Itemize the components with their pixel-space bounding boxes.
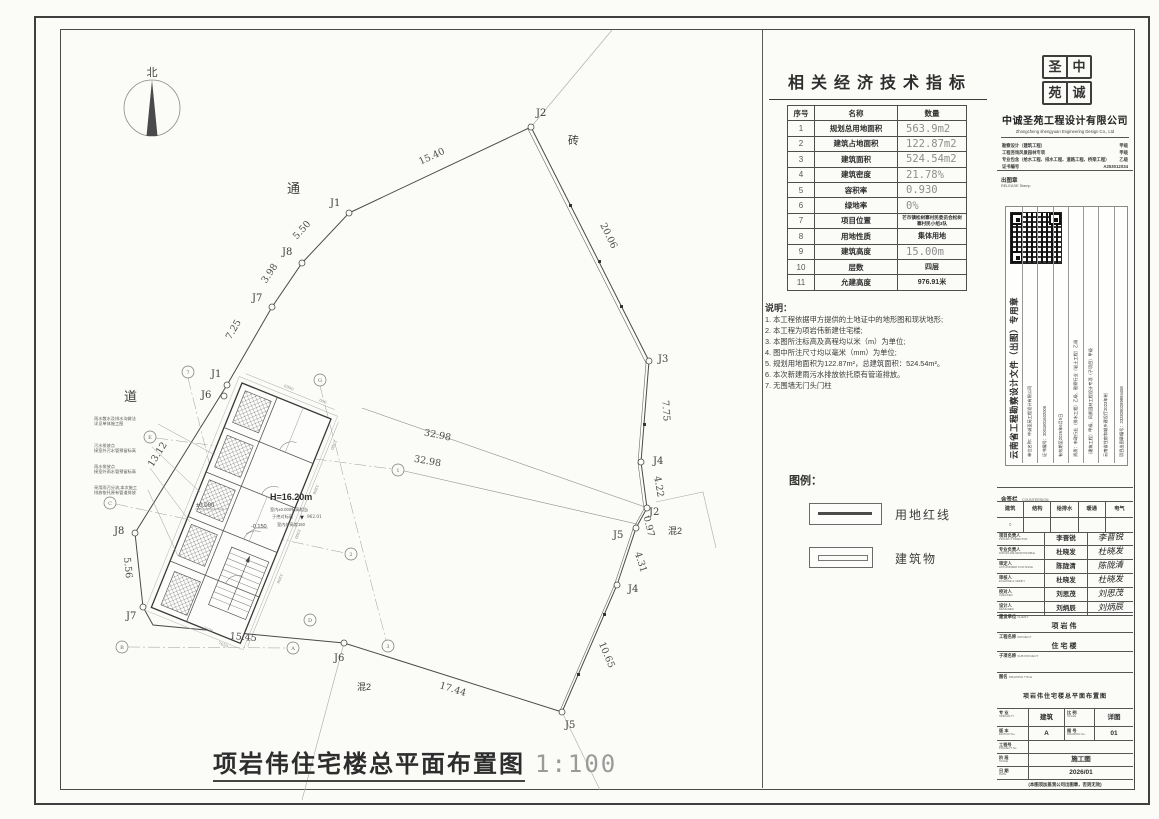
- stamp-mark: ○: [997, 518, 1024, 533]
- official-stamp: 云南省工程勘察设计文件（出图）专用章 单位名称：中诚圣苑工程设计有限公司 证书编…: [1005, 206, 1128, 466]
- table-row: 4建筑密度21.78%: [788, 167, 967, 182]
- svg-text:2: 2: [349, 552, 352, 558]
- stamp-rotated-text: 云南省工程勘察设计文件（出图）专用章 单位名称：中诚圣苑工程设计有限公司 证书编…: [1006, 207, 1126, 463]
- indicator-table-title: 相关经济技术指标: [763, 69, 997, 93]
- note-item: 6. 本次新建雨污水排放依托原有管道排放。: [765, 369, 995, 380]
- legend-label-building: 建筑物: [895, 550, 937, 567]
- stamp-line: 单位名称：中诚圣苑工程设计有限公司: [1022, 207, 1037, 463]
- site-boundary: [135, 30, 716, 800]
- svg-text:D: D: [308, 618, 312, 624]
- indicator-table: 序号 名称 数量 1规划总用地面积563.9m2 2建筑占地面积122.87m2…: [787, 105, 967, 291]
- handwritten-signature: 刘思茂: [1088, 587, 1134, 602]
- svg-text:J4: J4: [652, 456, 663, 467]
- note-item: 4. 图中所注尺寸均以毫米（mm）为单位;: [765, 347, 995, 358]
- table-row: 2建筑占地面积122.87m2: [788, 136, 967, 151]
- svg-text:J8: J8: [281, 247, 292, 258]
- stamp-line: （建筑工程）甲级、风景园林工程设计专项（子项目）甲级: [1083, 207, 1098, 463]
- signature-row: 校对人CHECKED 刘思茂刘思茂: [997, 588, 1133, 602]
- survey-point-labels: J1 J2 J3 J4 J2 J5 J4 J5 J6 J7 J8 J1 J6 J…: [113, 108, 668, 731]
- seal-char: 苑: [1042, 81, 1068, 105]
- svg-text:J2: J2: [535, 108, 546, 119]
- signature-row: 审核人EXAMINE & VERIFY 杜晓发杜晓发: [997, 574, 1133, 588]
- road-label-2: 道: [124, 389, 137, 404]
- svg-text:0.97: 0.97: [641, 515, 657, 538]
- col-header: 序号: [788, 106, 815, 121]
- subproject-row: 子项名称 SUB PROJECT: [997, 651, 1133, 673]
- drawing-sheet: 北 7 G 1 2 3 C B A D E: [0, 0, 1159, 819]
- client-row: 建设单位 CLIENT 项岩伟: [997, 612, 1133, 633]
- svg-text:于绝对标高: 于绝对标高: [272, 513, 293, 520]
- note-item: 3. 本图所注标高及高程均以米（m）为单位;: [765, 336, 995, 347]
- legend-swatch-redline: [809, 503, 882, 525]
- seal-char: 中: [1066, 55, 1092, 79]
- validity-note: (本图须加盖我公司出图章，否则无效): [997, 779, 1133, 789]
- countersign-header: 会签栏 COUNTERSIGN: [997, 487, 1133, 502]
- title-block: 圣 中 苑 诚 中诚圣苑工程设计有限公司 Zhongcheng shengyua…: [997, 29, 1133, 788]
- svg-text:E: E: [148, 435, 152, 441]
- svg-text:C: C: [108, 501, 112, 507]
- svg-text:±0.000: ±0.000: [196, 503, 215, 509]
- svg-text:室内±0.000标高相当: 室内±0.000标高相当: [270, 506, 308, 513]
- handwritten-signature: 杜晓发: [1088, 545, 1134, 560]
- svg-text:32.98: 32.98: [423, 428, 452, 444]
- drawing-main-title: 项岩伟住宅楼总平面布置图1:100: [213, 744, 617, 779]
- svg-text:J4: J4: [627, 584, 638, 595]
- revision-grid: 专 业SPECIALTY 建筑 比 例SCALE 详图 版 本EDITION N…: [997, 708, 1133, 780]
- seal-char: 诚: [1066, 81, 1092, 105]
- company-header: 圣 中 苑 诚 中诚圣苑工程设计有限公司 Zhongcheng shengyua…: [997, 29, 1133, 170]
- svg-text:J6: J6: [200, 390, 211, 401]
- discipline-table: 建筑结构给排水暖通电气 ○: [997, 501, 1133, 533]
- handwritten-signature: 杜晓发: [1088, 573, 1134, 588]
- svg-text:3.98: 3.98: [259, 262, 280, 286]
- table-row: 1规划总用地面积563.9m2: [788, 121, 967, 136]
- north-arrow-icon: 北: [124, 66, 180, 136]
- stamp-line: 云南省住房和城乡建设厅2023年制: [1098, 207, 1113, 463]
- svg-text:7.75: 7.75: [659, 400, 671, 422]
- brick-label: 砖: [568, 133, 579, 147]
- svg-text:13.12: 13.12: [146, 440, 170, 469]
- drawing-title-row: 图名 DRAWING TITLE 项岩伟住宅楼总平面布置图: [997, 672, 1133, 709]
- stamp-line: 资质：市政行业（排水工程）乙级、勘察行业（岩土工程）乙级: [1068, 207, 1083, 463]
- svg-text:32.98: 32.98: [413, 454, 442, 470]
- handwritten-signature: 陈陇清: [1088, 559, 1134, 574]
- svg-text:J5: J5: [612, 530, 623, 541]
- col-header: 数量: [898, 106, 967, 121]
- seal-char: 圣: [1042, 55, 1068, 79]
- indicator-column: 相关经济技术指标 序号 名称 数量 1规划总用地面积563.9m2 2建筑占地面…: [763, 29, 997, 788]
- signature-row: 项目负责人PROJECT DIRECTOR 李晋锐李晋锐: [997, 532, 1133, 546]
- svg-text:962.01: 962.01: [307, 514, 322, 519]
- svg-text:4.22: 4.22: [651, 475, 666, 498]
- svg-text:7: 7: [186, 370, 189, 376]
- company-name-en: Zhongcheng shengyuan Engineering Design …: [1001, 129, 1129, 138]
- signature-row: 审定人AUTHORIZER FOR ISSUE 陈陇清陈陇清: [997, 560, 1133, 574]
- note-item: 5. 规划用地面积为122.87m²，总建筑面积：524.54m²。: [765, 358, 995, 369]
- svg-text:-0.150: -0.150: [251, 524, 267, 530]
- svg-text:4.31: 4.31: [632, 550, 649, 574]
- svg-text:600: 600: [318, 397, 327, 405]
- svg-text:10.65: 10.65: [596, 640, 617, 669]
- svg-text:H=16.20m: H=16.20m: [270, 492, 312, 502]
- svg-text:J8: J8: [113, 526, 124, 537]
- building-symbol: [818, 555, 868, 561]
- handwritten-signature: 李晋锐: [1088, 531, 1134, 546]
- stamp-line: 有效期至2026年6月5日: [1053, 207, 1068, 463]
- svg-text:排放依托原有管道排放: 排放依托原有管道排放: [94, 489, 137, 496]
- note-item: 2. 本工程为项岩伟新建住宅楼;: [765, 325, 995, 336]
- release-label-en: RELEASE Stamp: [1001, 184, 1133, 188]
- drawing-title-text: 项岩伟住宅楼总平面布置图: [213, 751, 525, 782]
- legend-title: 图例：: [789, 472, 822, 488]
- svg-text:5.50: 5.50: [291, 219, 313, 242]
- building-footprint: 6900 600 3300 3300 3300 3300: [145, 366, 351, 653]
- svg-text:5.56: 5.56: [121, 557, 134, 579]
- svg-text:15.40: 15.40: [417, 146, 446, 167]
- table-header-row: 序号 名称 数量: [788, 106, 967, 121]
- svg-text:B: B: [120, 645, 124, 651]
- svg-text:J5: J5: [564, 720, 575, 731]
- svg-text:20.06: 20.06: [597, 221, 619, 250]
- svg-text:详见单体施工图: 详见单体施工图: [94, 420, 123, 427]
- col-header: 名称: [815, 106, 898, 121]
- notes-section: 说明： 1. 本工程依据甲方提供的土地证中的地形图和现状地形; 2. 本工程为项…: [765, 301, 995, 391]
- qualification-list: 勘察设计（建筑工程）甲级 工程咨询风景园林专项甲级 专业包含（给水工程、排水工程…: [1002, 142, 1128, 170]
- stamp-line: 证书编号：2001801602006: [1037, 207, 1052, 463]
- note-item: 7. 无围墙无门头门柱: [765, 380, 995, 391]
- svg-text:接室外污水管预留标高: 接室外污水管预留标高: [94, 447, 136, 454]
- level-mark-icon: ▼: [300, 515, 304, 521]
- table-row: 5容积率0.930: [788, 182, 967, 197]
- svg-text:17.44: 17.44: [438, 680, 467, 698]
- svg-text:J7: J7: [125, 611, 136, 622]
- legend-label-redline: 用地红线: [895, 506, 951, 523]
- svg-text:J1: J1: [329, 198, 340, 209]
- table-row: 7项目位置芒市镇松树寨村民委员会松树寨村民小组3队: [788, 213, 967, 228]
- redline-symbol: [818, 512, 872, 515]
- svg-text:J7: J7: [251, 293, 262, 304]
- table-row: 9建筑高度15.00m: [788, 244, 967, 259]
- drawing-scale: 1:100: [535, 750, 617, 778]
- title-underline: [769, 99, 987, 100]
- project-row: 工程名称 PROJECT 住宅楼: [997, 632, 1133, 652]
- svg-text:J6: J6: [333, 653, 344, 664]
- svg-text:室内外高差150: 室内外高差150: [277, 521, 306, 528]
- svg-text:北: 北: [147, 66, 158, 79]
- svg-text:J3: J3: [657, 354, 668, 365]
- release-stamp-section: 出图章 RELEASE Stamp: [997, 170, 1133, 207]
- table-row: 10层数四层: [788, 259, 967, 274]
- table-row: 8用地性质集体用地: [788, 229, 967, 244]
- notes-title: 说明：: [765, 301, 995, 314]
- company-name-cn: 中诚圣苑工程设计有限公司: [997, 112, 1133, 127]
- svg-text:G: G: [318, 378, 322, 384]
- svg-text:1: 1: [396, 468, 399, 474]
- signature-row: 专业负责人DISCIPLINE RESPONSIBLE 杜晓发杜晓发: [997, 546, 1133, 560]
- mix2-label-right: 混2: [668, 526, 682, 536]
- legend-swatch-building: [809, 547, 873, 568]
- road-label-1: 通: [287, 181, 300, 196]
- signature-table: 项目负责人PROJECT DIRECTOR 李晋锐李晋锐 专业负责人DISCIP…: [997, 532, 1133, 612]
- mix2-label-bottom: 混2: [357, 682, 371, 692]
- table-row: 6绿地率0%: [788, 198, 967, 213]
- svg-text:15.45: 15.45: [229, 631, 257, 644]
- release-label-cn: 出图章: [1001, 176, 1133, 184]
- svg-text:3: 3: [386, 644, 389, 650]
- table-row: 11允建高度976.91米: [788, 275, 967, 290]
- svg-text:7.25: 7.25: [224, 318, 244, 342]
- svg-text:J1: J1: [210, 369, 221, 380]
- svg-text:A: A: [290, 646, 295, 652]
- stamp-line: 项目出图章编号：2328280289894468: [1114, 207, 1129, 463]
- company-seal-logo: 圣 中 苑 诚: [997, 55, 1133, 105]
- table-row: 3建筑面积524.54m2: [788, 152, 967, 167]
- note-item: 1. 本工程依据甲方提供的土地证中的地形图和现状地形;: [765, 314, 995, 325]
- svg-text:接室外雨水管预留标高: 接室外雨水管预留标高: [94, 468, 136, 475]
- stamp-title: 云南省工程勘察设计文件（出图）专用章: [1008, 269, 1020, 459]
- svg-text:6900: 6900: [283, 383, 295, 392]
